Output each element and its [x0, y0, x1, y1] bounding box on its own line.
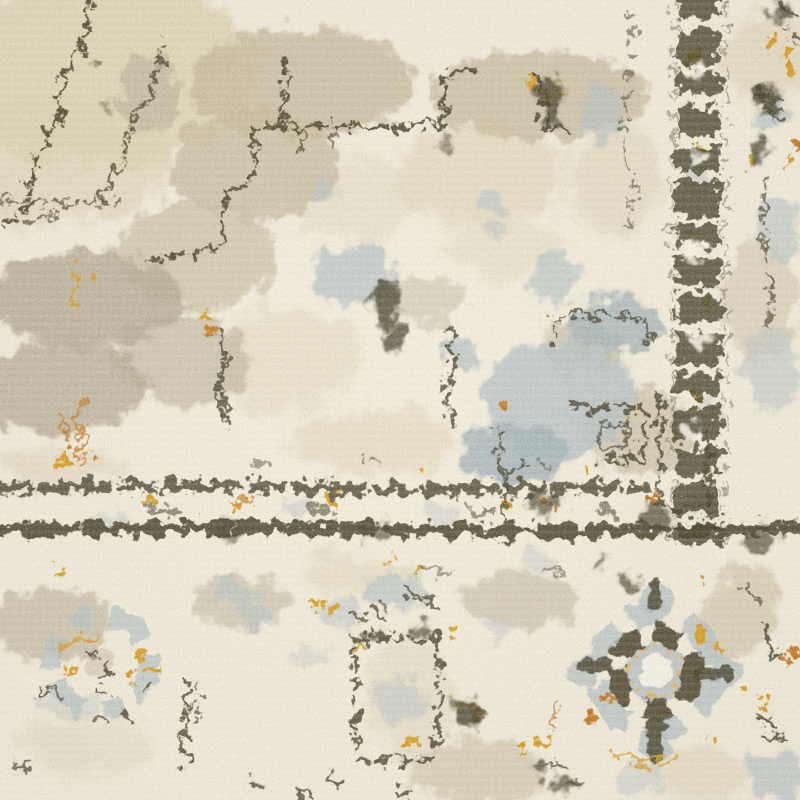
pile-fuzz-dark: [0, 0, 800, 800]
rug-render: [0, 0, 800, 800]
rug-photograph: [0, 0, 800, 800]
